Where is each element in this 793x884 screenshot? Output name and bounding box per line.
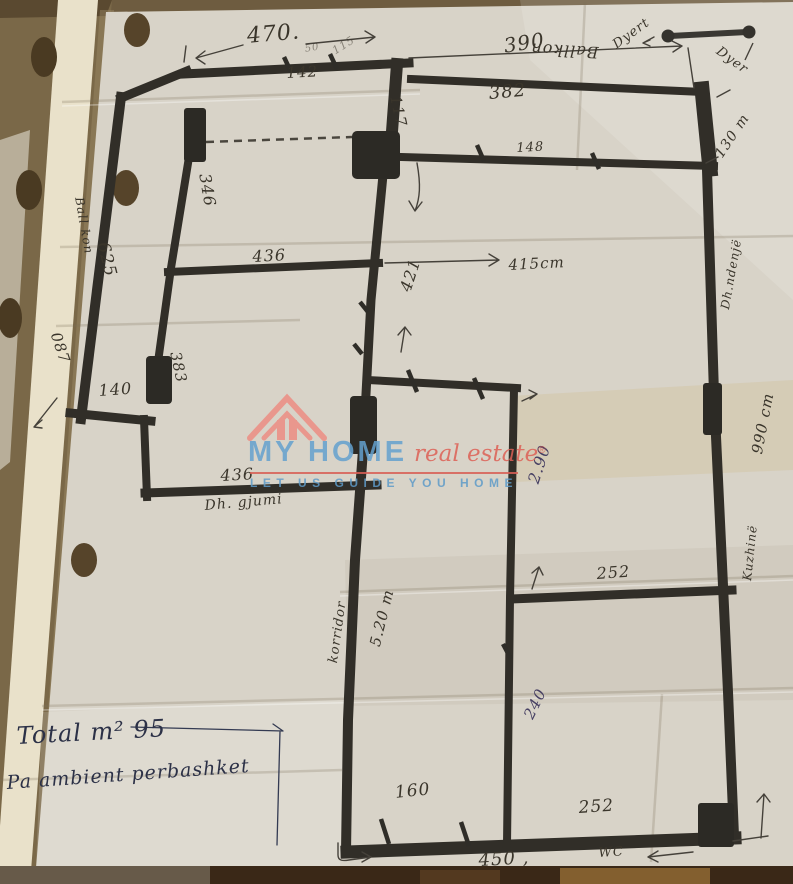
dim-450: 450 , — [478, 847, 530, 871]
room-label-wc: WC — [598, 844, 624, 861]
dim-140: 140 — [98, 379, 133, 400]
dim-160: 160 — [394, 779, 431, 803]
dim-252-top: 252 — [596, 562, 631, 583]
dim-142: 142 — [286, 62, 319, 82]
floor-plan-photo: 470. 142 50 115 390 Ballkon Dyert Dyer 3… — [0, 0, 793, 884]
dim-436-top: 436 — [252, 245, 286, 266]
logo-divider — [250, 472, 518, 474]
dim-top-470: 470. — [246, 19, 301, 49]
logo-tagline: LET US GUIDE YOU HOME — [250, 476, 518, 490]
room-label-ballkon: Ballkon — [530, 39, 599, 62]
dim-252-bottom: 252 — [578, 796, 615, 818]
table-surface — [0, 866, 793, 884]
logo-registered-mark: ® — [538, 445, 545, 456]
logo-brand-text: MY HOME — [248, 436, 407, 468]
dim-415cm: 415cm — [508, 253, 565, 274]
house-icon — [244, 390, 330, 442]
dim-148: 148 — [516, 140, 545, 156]
dim-382: 382 — [488, 80, 527, 104]
logo-suffix-text: real estate — [414, 441, 538, 467]
